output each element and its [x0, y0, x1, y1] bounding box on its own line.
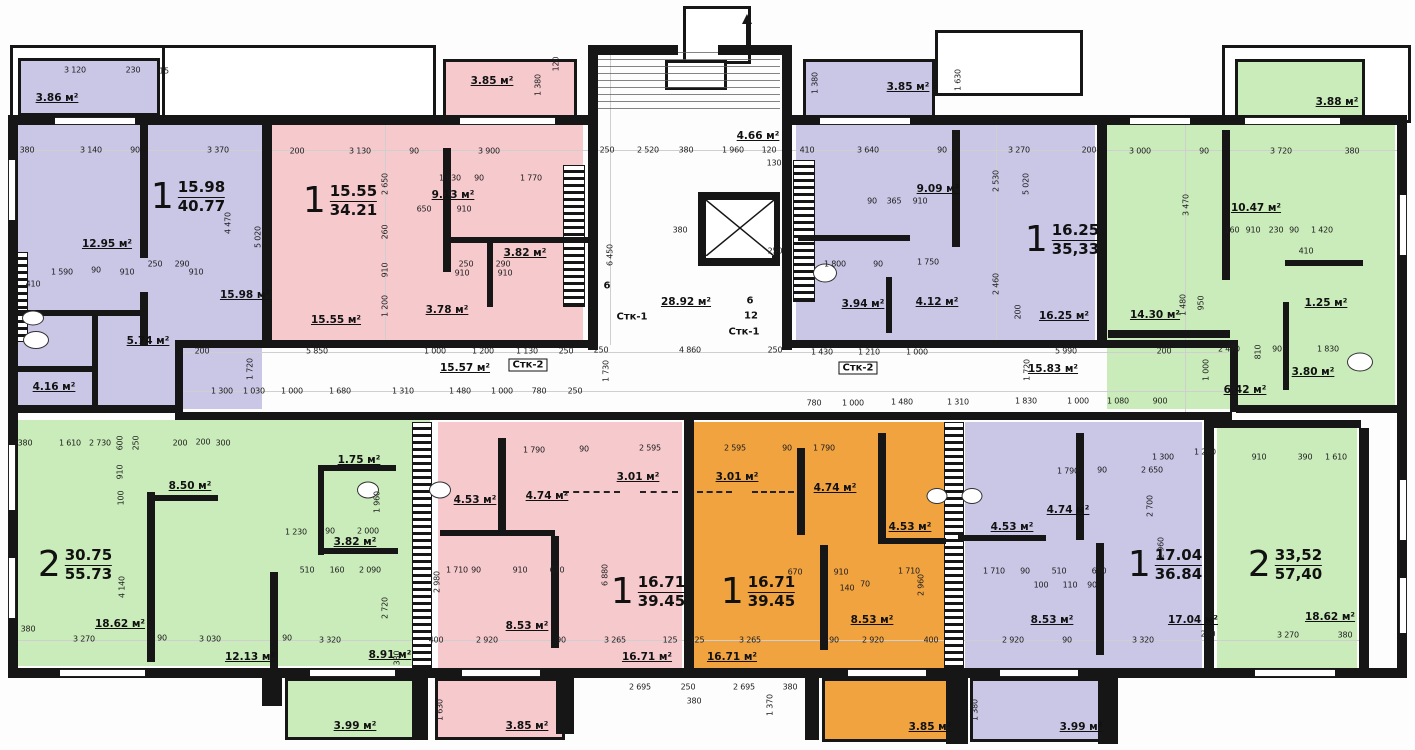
room-area-label: 3.88 м² — [1316, 96, 1359, 108]
dimension-label: 380 — [679, 146, 694, 155]
window — [1255, 669, 1335, 677]
dimension-label: 5 020 — [254, 226, 263, 248]
room-area-label: 10.47 м² — [1231, 202, 1281, 214]
window — [1245, 117, 1340, 125]
elevator-shaft — [706, 200, 774, 256]
room-area-label: 15.55 м² — [311, 314, 361, 326]
dimension-label: 380 — [20, 146, 35, 155]
apartment-rooms-count: 1 — [151, 179, 174, 215]
dimension-label: 140 — [840, 584, 855, 593]
dimension-label: 200 — [1082, 146, 1097, 155]
room-area-label: 18.62 м² — [95, 618, 145, 630]
dimension-label: 3 265 — [604, 636, 626, 645]
dimension-label: 90 — [282, 634, 292, 643]
dimension-label: 3 265 — [739, 636, 761, 645]
dimension-label: 230 — [126, 66, 141, 75]
dimension-label: 3 370 — [207, 146, 229, 155]
apartment-type-label: 115.5534.21 — [303, 183, 377, 219]
apartment-type-label: 116.2535,33 — [1025, 222, 1099, 258]
dimension-label: 2 650 — [381, 173, 390, 195]
room-area-label: 4.74 м² — [814, 482, 857, 494]
dimension-label: 160 — [1225, 226, 1240, 235]
dimension-label: 1 200 — [472, 347, 494, 356]
total-area-value: 34.21 — [330, 202, 377, 219]
dimension-label: 110 — [1063, 581, 1078, 590]
dimension-label: 90 — [91, 266, 101, 275]
dimension-label: 1 000 — [906, 348, 928, 357]
room-area-label: 4.74 м² — [1047, 504, 1090, 516]
shaft-hatch — [793, 160, 815, 302]
total-area-value: 35,33 — [1052, 241, 1099, 258]
wall — [1283, 302, 1289, 390]
dimension-label: 2 460 — [992, 273, 1001, 295]
room-area-label: 3.01 м² — [716, 471, 759, 483]
dimension-label: 4 860 — [679, 346, 701, 355]
dimension-label: 290 — [496, 260, 511, 269]
dimension-label: 1 960 — [373, 491, 382, 513]
window — [1399, 195, 1407, 255]
dimension-label: 250 — [459, 260, 474, 269]
dimension-label: 2 000 — [357, 527, 379, 536]
apartment-rooms-count: 1 — [611, 574, 634, 610]
dimension-label: 4 140 — [118, 576, 127, 598]
room-area-label: 3.85 м² — [887, 81, 930, 93]
dimension-label: 1 310 — [947, 398, 969, 407]
dimension-label: 1 000 — [491, 387, 513, 396]
dimension-label: 90 — [556, 636, 566, 645]
dimension-label: 1 730 — [602, 360, 611, 382]
dimension-label: 3 270 — [1277, 631, 1299, 640]
dimension-label: 1 310 — [392, 387, 414, 396]
dimension-label: 250 — [600, 146, 615, 155]
window — [1399, 578, 1407, 633]
wall — [147, 492, 155, 662]
dimension-label: 1 590 — [51, 268, 73, 277]
dimension-label: 2 695 — [733, 683, 755, 692]
dimension-label: 1 630 — [954, 69, 963, 91]
wall — [698, 192, 706, 266]
dimension-label: 1 000 — [1067, 397, 1089, 406]
dimension-label: 200 — [1201, 630, 1216, 639]
dimension-label: 120 — [552, 57, 561, 72]
dimension-label: 1 610 — [1325, 453, 1347, 462]
wall — [886, 277, 892, 333]
dimension-label: 910 — [834, 568, 849, 577]
wall — [8, 668, 1407, 678]
dimension-label: 250 — [768, 346, 783, 355]
wall — [140, 122, 148, 258]
total-area-value: 40.77 — [178, 198, 225, 215]
room-area-label: 4.66 м² — [737, 130, 780, 142]
dimension-label: 810 — [1254, 345, 1263, 360]
room-area-label: 6.42 м² — [1224, 384, 1267, 396]
dimension-label: 1 800 — [824, 260, 846, 269]
living-area-value: 15.98 — [178, 179, 225, 197]
living-area-value: 16.71 — [748, 574, 795, 592]
dimension-label: 120 — [762, 146, 777, 155]
room-area-label: 9.09 м² — [917, 183, 960, 195]
dimension-label: 670 — [1092, 567, 1107, 576]
apartment-area-fraction: 15.5534.21 — [330, 183, 377, 219]
wall — [782, 45, 792, 125]
wall — [262, 668, 282, 706]
room-area-label: 3.82 м² — [504, 247, 547, 259]
wall — [551, 536, 559, 648]
dimension-label: 3 140 — [80, 146, 102, 155]
room-area-label: 3.99 м² — [1060, 721, 1103, 733]
dimension-label: 250 — [681, 683, 696, 692]
dimension-label: 90 — [782, 444, 792, 453]
dimension-label: 100 — [117, 491, 126, 506]
dimension-label: 200 — [1157, 347, 1172, 356]
plumbing-fixture-icon — [962, 488, 983, 504]
window — [60, 669, 145, 677]
apartment-area-fraction: 15.9840.77 — [178, 179, 225, 215]
dimension-label: 2 730 — [89, 439, 111, 448]
dimension-label: 1 210 — [858, 348, 880, 357]
room-area-label: 4.53 м² — [889, 521, 932, 533]
dimension-label: 250 — [132, 436, 141, 451]
room-area-label: 5.74 м² — [127, 335, 170, 347]
dimension-label: 1 770 — [520, 174, 542, 183]
apartment-type-label: 230.7555.73 — [38, 547, 112, 583]
apartment-rooms-count: 1 — [1025, 222, 1048, 258]
window — [8, 558, 16, 618]
wall — [318, 548, 398, 554]
dimension-label: 90 — [1087, 581, 1097, 590]
dimension-label: 1 790 — [813, 444, 835, 453]
room-area-label: 8.53 м² — [851, 614, 894, 626]
wall — [958, 535, 1046, 541]
grid-guide-line — [1185, 125, 1186, 412]
stair-label: Стк-1 — [616, 312, 647, 323]
room-area-label: 1.75 м² — [338, 454, 381, 466]
dimension-label: 380 — [783, 683, 798, 692]
dimension-label: 400 — [924, 636, 939, 645]
dimension-label: 780 — [532, 387, 547, 396]
wall — [698, 258, 780, 266]
wall — [318, 465, 324, 555]
wall — [1359, 428, 1369, 673]
total-area-value: 36.84 — [1155, 566, 1202, 583]
dimension-label: 1 420 — [1311, 226, 1333, 235]
window — [310, 669, 395, 677]
dimension-label: 1 610 — [59, 439, 81, 448]
plumbing-fixture-icon — [23, 331, 49, 349]
dimension-label: 90 — [579, 445, 589, 454]
wall — [805, 668, 819, 740]
dimension-label: 1 380 — [811, 72, 820, 94]
room-area-label: 3.80 м² — [1292, 366, 1335, 378]
window — [820, 117, 910, 125]
dimension-label: 1 000 — [424, 347, 446, 356]
dimension-label: 2 595 — [639, 444, 661, 453]
dimension-label: 650 — [417, 205, 432, 214]
wall — [684, 420, 694, 670]
dimension-label: 2 650 — [1141, 466, 1163, 475]
dimension-label: 200 — [1014, 305, 1023, 320]
window — [1130, 117, 1190, 125]
room-area-label: 4.74 м² — [526, 490, 569, 502]
room-area-label: 3.82 м² — [334, 536, 377, 548]
dimension-label: 90 — [937, 146, 947, 155]
wall — [588, 125, 598, 350]
dimension-label: 90 — [409, 147, 419, 156]
dimension-label: 910 — [1246, 226, 1261, 235]
room-area-label: 8.50 м² — [169, 480, 212, 492]
elevator-cross-icon — [706, 200, 774, 256]
dimension-label: 250 — [768, 247, 783, 256]
apartment-area-fraction: 16.7139.45 — [638, 574, 685, 610]
dimension-label: 380 — [18, 439, 33, 448]
north-arrow-icon — [738, 14, 756, 48]
wall — [878, 538, 946, 544]
dimension-label: 5 850 — [306, 347, 328, 356]
dimension-label: 1 960 — [722, 146, 744, 155]
wall — [445, 237, 589, 243]
apartment-area-fraction: 30.7555.73 — [65, 547, 112, 583]
wall — [92, 312, 98, 407]
dimension-label: 1 300 — [1152, 453, 1174, 462]
dimension-label: 1 000 — [842, 399, 864, 408]
window — [8, 445, 16, 510]
wall — [487, 243, 493, 307]
stair-label: 6 — [747, 296, 754, 307]
room-area-label: 3.85 м² — [471, 75, 514, 87]
dimension-label: 2 595 — [724, 444, 746, 453]
apartment-type-label: 115.9840.77 — [151, 179, 225, 215]
dimension-label: 910 — [457, 205, 472, 214]
apartment-rooms-count: 1 — [303, 183, 326, 219]
dimension-label: 1 630 — [439, 174, 461, 183]
wall — [14, 366, 98, 372]
room-area-label: 18.62 м² — [1305, 611, 1355, 623]
dimension-label: 2 470 — [1218, 345, 1240, 354]
dimension-label: 510 — [300, 566, 315, 575]
dimension-label: 910 — [381, 263, 390, 278]
total-area-value: 57,40 — [1275, 566, 1322, 583]
dimension-label: 3 270 — [1008, 146, 1030, 155]
room-area-label: 8.53 м² — [506, 620, 549, 632]
room-area-label: 4.53 м² — [454, 494, 497, 506]
wall — [262, 122, 272, 348]
dimension-label: 400 — [429, 636, 444, 645]
dimension-label: 2 980 — [433, 571, 442, 593]
wall — [498, 438, 506, 533]
window — [1399, 480, 1407, 540]
partition-zigzag — [640, 491, 678, 493]
dimension-label: 90 — [1289, 226, 1299, 235]
dimension-label: 3 720 — [1270, 147, 1292, 156]
plumbing-fixture-icon — [1347, 353, 1373, 372]
dimension-label: 390 — [1298, 453, 1313, 462]
room-area-label: 15.57 м² — [440, 362, 490, 374]
room-area-label: 16.25 м² — [1039, 310, 1089, 322]
apartment-rooms-count: 2 — [1248, 547, 1271, 583]
dimension-label: 200 — [173, 439, 188, 448]
shaft-hatch — [563, 165, 585, 307]
dimension-label: 1 790 — [523, 446, 545, 455]
wall — [1236, 405, 1399, 413]
dimension-label: 250 — [559, 347, 574, 356]
dimension-label: 2 695 — [629, 683, 651, 692]
floor-plan: 3.86 м²12.95 м²15.98 м²5.74 м²4.16 м²3.8… — [0, 0, 1415, 750]
room-area-label: 3.99 м² — [334, 720, 377, 732]
dimension-label: 2 700 — [1146, 495, 1155, 517]
dimension-label: 1 000 — [1202, 359, 1211, 381]
dimension-label: 125 — [690, 636, 705, 645]
dimension-label: 910 — [189, 268, 204, 277]
dimension-label: 2 960 — [917, 574, 926, 596]
dimension-label: 3 130 — [349, 147, 371, 156]
dimension-label: 380 — [1345, 147, 1360, 156]
balcony-region — [1235, 59, 1365, 119]
dimension-label: 90 — [867, 197, 877, 206]
living-area-value: 16.71 — [638, 574, 685, 592]
dimension-label: 2 920 — [476, 636, 498, 645]
dimension-label: 1 380 — [971, 699, 980, 721]
dimension-label: 90 — [1272, 345, 1282, 354]
room-area-label: 3.85 м² — [506, 720, 549, 732]
dimension-label: 910 — [913, 197, 928, 206]
total-area-value: 55.73 — [65, 566, 112, 583]
dimension-label: 910 — [498, 269, 513, 278]
apartment-region — [438, 422, 682, 670]
dimension-label: 670 — [550, 566, 565, 575]
dimension-label: 380 — [673, 226, 688, 235]
dimension-label: 1 710 — [983, 567, 1005, 576]
dimension-label: 380 — [21, 625, 36, 634]
room-area-label: 4.16 м² — [33, 381, 76, 393]
dimension-label: 780 — [807, 399, 822, 408]
dimension-label: 1 480 — [449, 387, 471, 396]
apartment-type-label: 233,5257,40 — [1248, 547, 1322, 583]
upper-structure-outline — [162, 45, 436, 123]
dimension-label: 90 — [1097, 466, 1107, 475]
stair-label: Стк-1 — [728, 327, 759, 338]
dimension-label: 6 450 — [606, 244, 615, 266]
room-area-label: 12.95 м² — [82, 238, 132, 250]
dimension-label: 3 030 — [199, 635, 221, 644]
dimension-label: 90 — [474, 174, 484, 183]
wall — [1096, 543, 1104, 655]
living-area-value: 33,52 — [1275, 547, 1322, 565]
apartment-rooms-count: 1 — [1128, 547, 1151, 583]
dimension-label: 2 520 — [637, 146, 659, 155]
dimension-label: 1 370 — [766, 694, 775, 716]
dimension-label: 1 380 — [534, 74, 543, 96]
window — [848, 669, 926, 677]
dimension-label: 1 130 — [516, 347, 538, 356]
dimension-label: 230 — [1269, 226, 1284, 235]
window — [55, 117, 135, 125]
shaft-hatch — [412, 422, 432, 670]
dimension-label: 1 030 — [243, 387, 265, 396]
room-area-label: 28.92 м² — [661, 296, 711, 308]
dimension-label: 125 — [663, 636, 678, 645]
plumbing-fixture-icon — [22, 311, 44, 326]
dimension-label: 200 — [196, 438, 211, 447]
wall — [153, 495, 218, 501]
stair-label: Стк-2 — [838, 362, 877, 375]
dimension-label: 1 480 — [891, 398, 913, 407]
window — [8, 160, 16, 220]
wall — [782, 125, 792, 350]
dimension-label: 2 920 — [1002, 636, 1024, 645]
living-area-value: 16.25 — [1052, 222, 1099, 240]
dimension-label: 1 750 — [917, 258, 939, 267]
dimension-label: 90 — [829, 636, 839, 645]
stair-label: 12 — [744, 311, 758, 322]
dimension-label: 2 530 — [992, 170, 1001, 192]
window — [462, 669, 540, 677]
grid-guide-line — [996, 125, 997, 345]
room-area-label: 12.13 м² — [225, 651, 275, 663]
wall — [440, 530, 555, 536]
wall — [588, 45, 598, 125]
plumbing-fixture-icon — [429, 482, 451, 499]
dimension-label: 1 300 — [211, 387, 233, 396]
dimension-label: 410 — [1299, 247, 1314, 256]
wall — [698, 192, 780, 200]
wall — [443, 148, 451, 272]
dimension-label: 90 — [157, 634, 167, 643]
apartment-area-fraction: 17.0436.84 — [1155, 547, 1202, 583]
dimension-label: 410 — [26, 280, 41, 289]
dimension-label: 1 790 — [1057, 467, 1079, 476]
dimension-label: 90 — [130, 146, 140, 155]
wall — [183, 412, 1232, 420]
dimension-label: 1 480 — [1179, 294, 1188, 316]
room-area-label: 3.01 м² — [617, 471, 660, 483]
wall — [1108, 330, 1230, 338]
apartment-rooms-count: 2 — [38, 547, 61, 583]
dimension-label: 410 — [800, 146, 815, 155]
window — [1000, 669, 1078, 677]
apartment-area-fraction: 16.2535,33 — [1052, 222, 1099, 258]
wall — [588, 45, 678, 55]
room-area-label: 4.53 м² — [991, 521, 1034, 533]
dimension-label: 3 640 — [857, 146, 879, 155]
room-area-label: 15.83 м² — [1028, 363, 1078, 375]
living-area-value: 30.75 — [65, 547, 112, 565]
room-area-label: 4.12 м² — [916, 296, 959, 308]
dimension-label: 100 — [1034, 581, 1049, 590]
room-area-label: 14.30 м² — [1130, 309, 1180, 321]
room-area-label: 8.91 м² — [369, 649, 412, 661]
wall — [556, 668, 574, 734]
apartment-type-label: 116.7139.45 — [721, 574, 795, 610]
dimension-label: 1 230 — [285, 528, 307, 537]
dimension-label: 90 — [873, 260, 883, 269]
dimension-label: 250 — [594, 346, 609, 355]
apartment-rooms-count: 1 — [721, 574, 744, 610]
dimension-label: 1 080 — [1107, 397, 1129, 406]
dimension-label: 90 — [325, 527, 335, 536]
room-area-label: 16.71 м² — [707, 651, 757, 663]
dimension-label: 4 470 — [224, 212, 233, 234]
partition-zigzag — [752, 491, 794, 493]
dimension-label: 910 — [116, 465, 125, 480]
window — [460, 117, 555, 125]
dimension-label: 910 — [513, 566, 528, 575]
stair-treads — [598, 52, 780, 112]
dimension-label: 250 — [148, 260, 163, 269]
dimension-label: 3 470 — [1182, 194, 1191, 216]
dimension-label: 600 — [116, 436, 125, 451]
wall — [797, 448, 805, 535]
dimension-label: 1 680 — [329, 387, 351, 396]
